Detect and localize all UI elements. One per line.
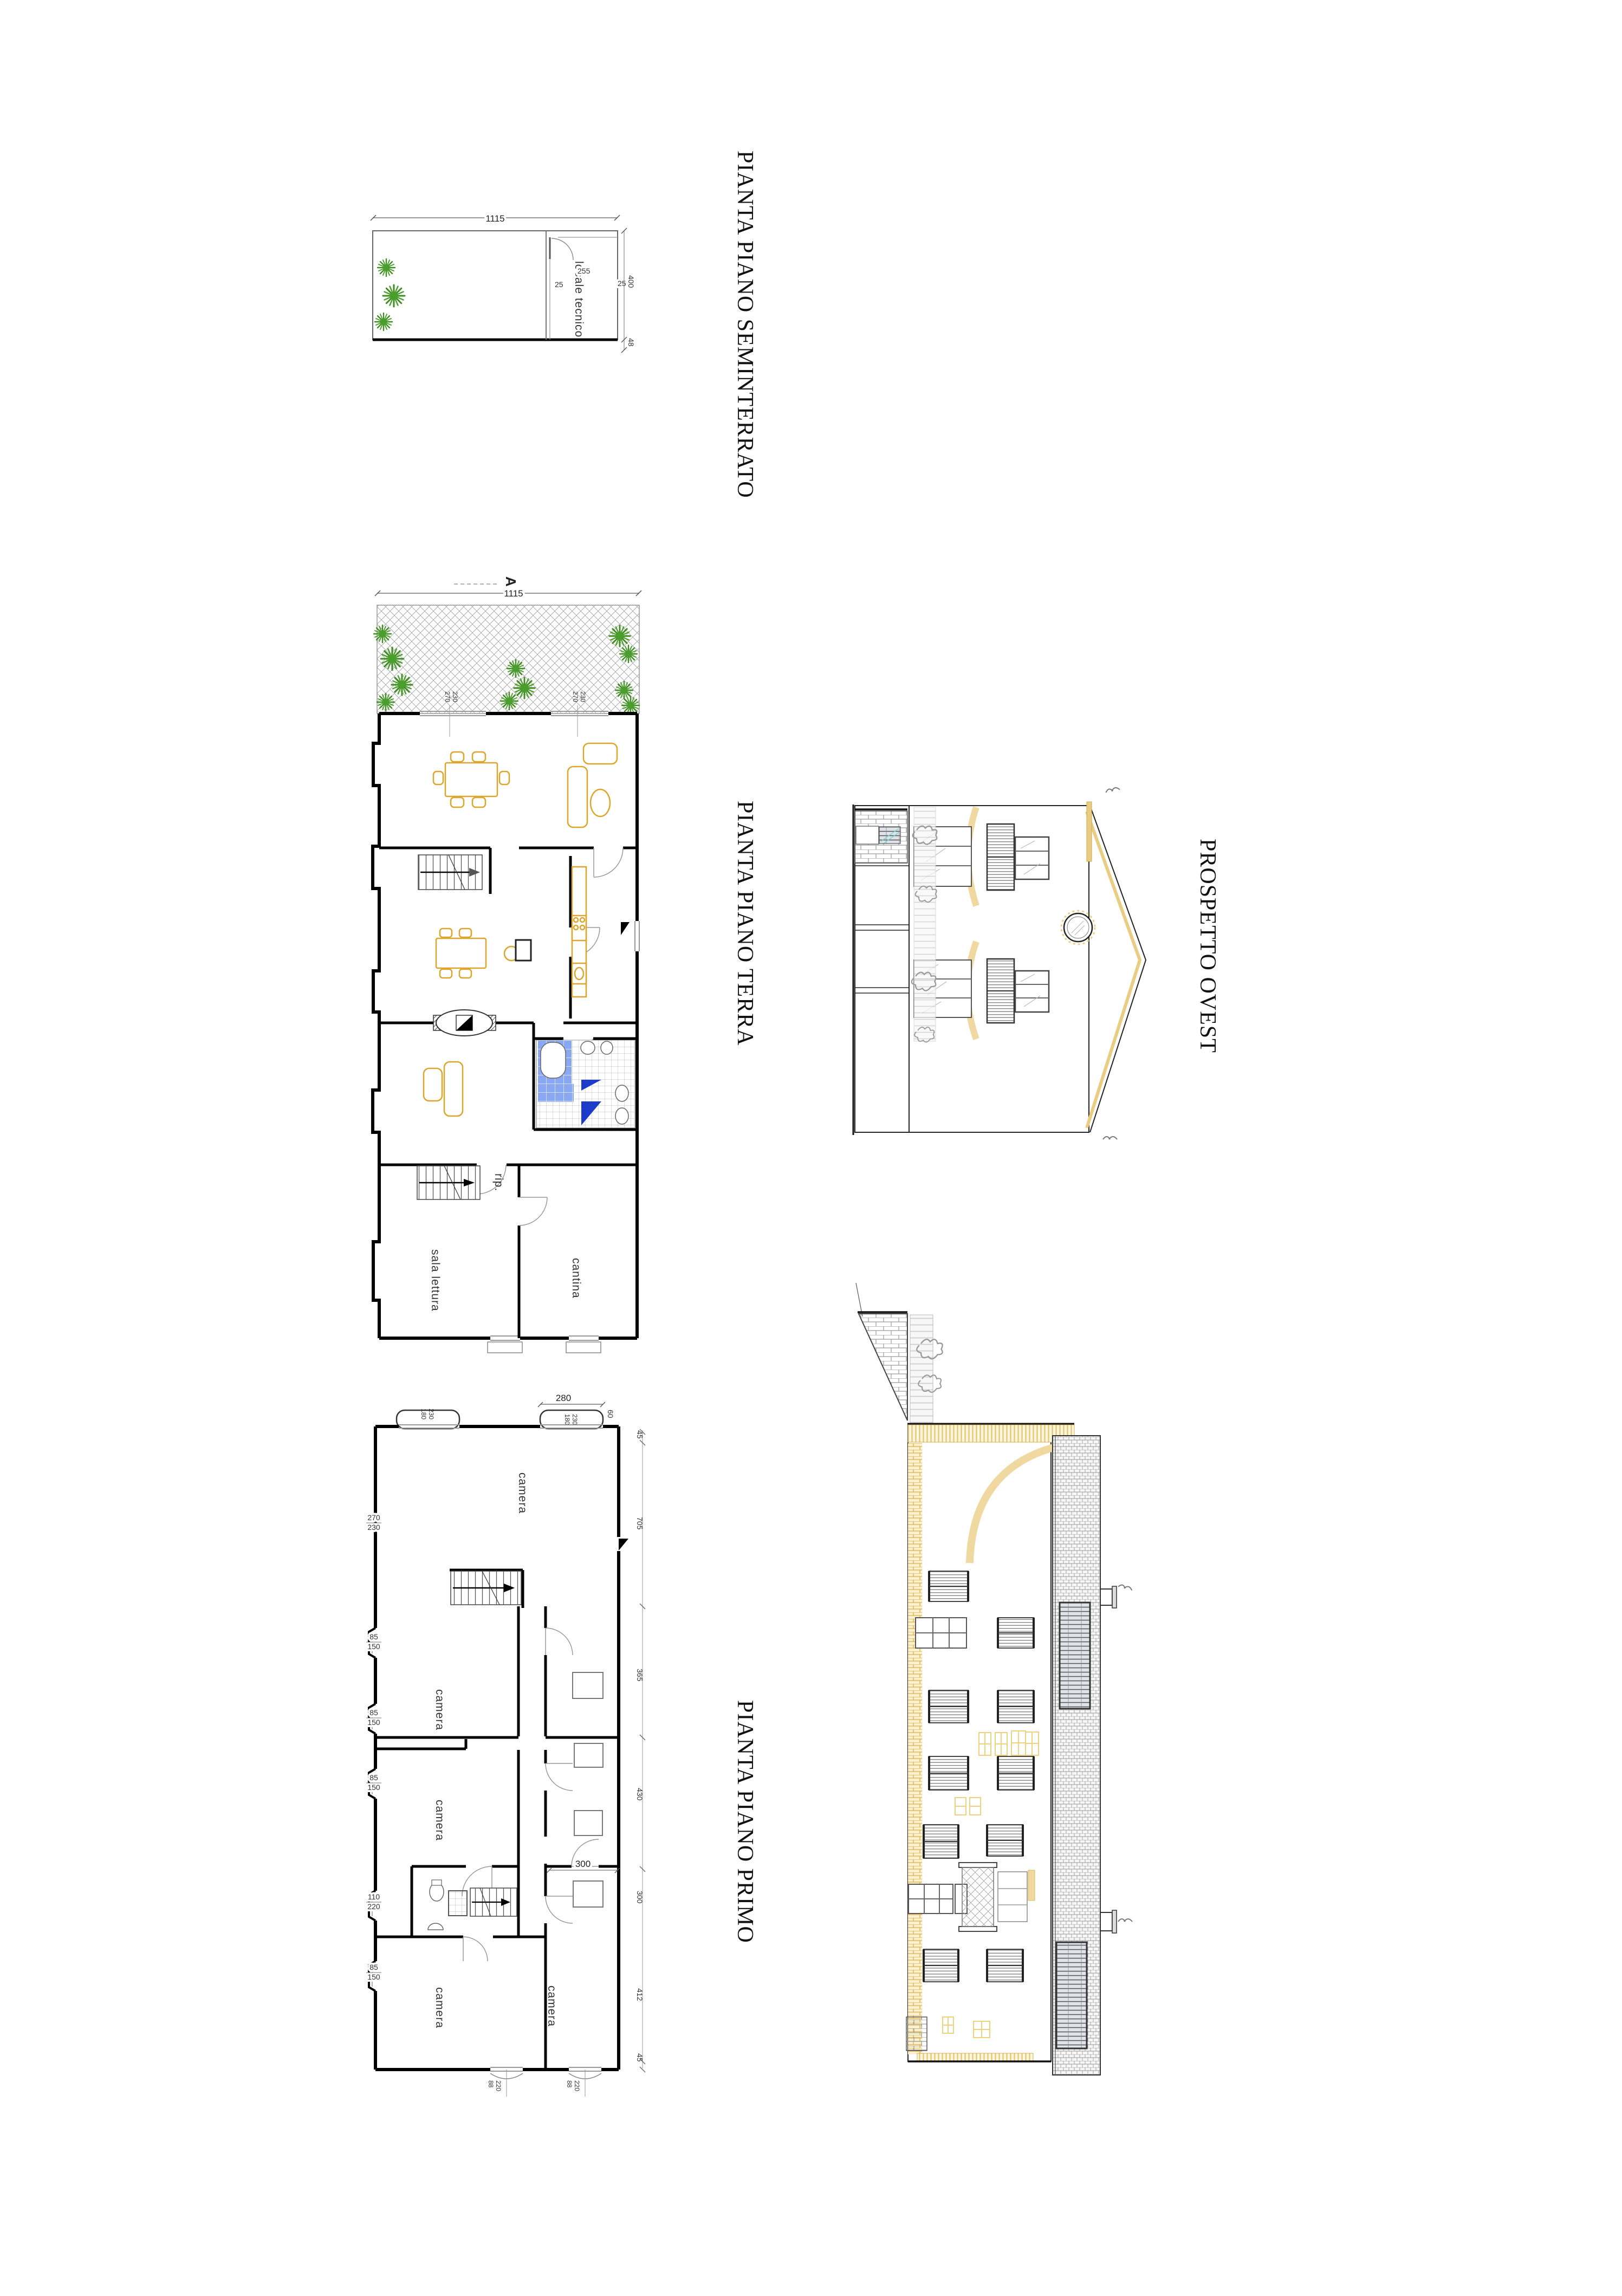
- chimney: [1100, 1910, 1132, 1933]
- svg-text:85: 85: [369, 1963, 378, 1971]
- svg-text:150: 150: [367, 1718, 380, 1727]
- dim-60: 60: [606, 1410, 615, 1418]
- svg-text:88: 88: [566, 2080, 573, 2088]
- svg-text:110: 110: [368, 1892, 380, 1901]
- primo-bathroom: [428, 1880, 467, 1930]
- elevation-ovest: [853, 787, 1146, 1139]
- fireplace: [433, 1010, 496, 1036]
- primo-stairs-landing: [470, 1888, 517, 1916]
- bird-icon: [1105, 787, 1119, 793]
- dim-230: 230: [427, 1409, 435, 1419]
- svg-text:85: 85: [369, 1708, 378, 1717]
- stairs-down: [417, 1166, 480, 1199]
- dim-230: 230: [571, 1414, 579, 1425]
- gable-brick: [859, 1314, 907, 1421]
- svg-text:220: 220: [367, 1902, 380, 1911]
- title-plan-seminterrato: PIANTA PIANO SEMINTERRATO: [732, 151, 757, 498]
- section-marker: A: [503, 576, 519, 587]
- dim-window-h: 230: [579, 691, 587, 702]
- roof-skylight: [1056, 1942, 1087, 2048]
- room-camera: camera: [546, 1986, 558, 2027]
- dim-280: 280: [556, 1393, 571, 1403]
- room-camera: camera: [433, 1689, 446, 1730]
- chimney: [1100, 1584, 1133, 1608]
- dim-300-skylight: 300: [575, 1859, 591, 1869]
- dim-total-width: 1115: [504, 588, 523, 599]
- svg-text:85: 85: [369, 1632, 378, 1641]
- plan-terra: A 1115 270 230 270 230: [373, 576, 641, 1353]
- dim-total-width: 1115: [485, 213, 504, 224]
- svg-text:88: 88: [487, 2080, 495, 2088]
- bird-icon: [1103, 1137, 1117, 1139]
- svg-text:270: 270: [367, 1513, 380, 1522]
- svg-text:85: 85: [369, 1773, 378, 1782]
- svg-text:150: 150: [367, 1642, 380, 1651]
- drawing-sheet: 1115 locale tecnico 25 255 25 400 48 PIA…: [0, 0, 1622, 2296]
- svg-text:150: 150: [367, 1973, 380, 1981]
- svg-text:150: 150: [367, 1783, 380, 1792]
- dim-180: 180: [563, 1414, 571, 1425]
- svg-text:412: 412: [635, 1988, 644, 2001]
- svg-text:45: 45: [635, 2053, 644, 2062]
- title-plan-primo: PIANTA PIANO PRIMO: [732, 1700, 757, 1943]
- room-rip: rip.: [492, 1173, 505, 1191]
- plan-primo: 280 180 230 180 230 60: [366, 1393, 645, 2097]
- terra-doors: [477, 848, 623, 1225]
- svg-text:45: 45: [635, 1430, 644, 1439]
- room-camera: camera: [433, 1800, 446, 1841]
- base-brick: [906, 2017, 927, 2051]
- dim-wall-left: 25: [555, 280, 563, 289]
- dim-180: 180: [420, 1409, 427, 1419]
- title-elevation-ovest: PROSPETTO OVEST: [1195, 839, 1220, 1053]
- svg-text:220: 220: [573, 2080, 581, 2091]
- terra-bathroom: [536, 1040, 635, 1128]
- dim-window-w: 270: [444, 691, 451, 702]
- room-sala-lettura: sala lettura: [429, 1249, 442, 1312]
- desk: [516, 940, 531, 961]
- north-wedge: [621, 922, 630, 935]
- primo-right-dims: 45 705 365 430 300 412 45: [635, 1429, 645, 2072]
- svg-text:430: 430: [635, 1788, 644, 1801]
- plan-seminterrato: 1115 locale tecnico 25 255 25 400 48: [371, 213, 635, 353]
- eave-tiles: [908, 1425, 1074, 1442]
- roof-skylight: [1060, 1603, 1090, 1709]
- title-plan-terra: PIANTA PIANO TERRA: [732, 801, 757, 1046]
- svg-text:705: 705: [635, 1517, 644, 1530]
- dim-wall-right: 25: [618, 279, 626, 288]
- dim-depth: 400: [627, 275, 635, 288]
- dim-offset: 48: [627, 338, 635, 347]
- svg-text:365: 365: [635, 1669, 644, 1682]
- room-camera: camera: [433, 1987, 446, 2028]
- dim-window-w: 270: [572, 691, 579, 702]
- elevation-south: [856, 1283, 1133, 2075]
- stairs-up: [418, 855, 482, 890]
- primo-bottom-dims: 88 220 88 220: [487, 2070, 585, 2097]
- skylights: [573, 1672, 603, 1907]
- svg-text:220: 220: [495, 2080, 502, 2091]
- room-camera: camera: [516, 1473, 529, 1514]
- dim-room-width: 255: [578, 267, 591, 275]
- svg-text:230: 230: [367, 1523, 380, 1532]
- room-cantina: cantina: [570, 1258, 582, 1299]
- quoin-strip: [908, 1443, 922, 2054]
- primo-stairs: [451, 1571, 521, 1605]
- dim-window-h: 230: [451, 691, 459, 702]
- svg-text:300: 300: [635, 1891, 644, 1904]
- ridge-band: [910, 1315, 933, 1423]
